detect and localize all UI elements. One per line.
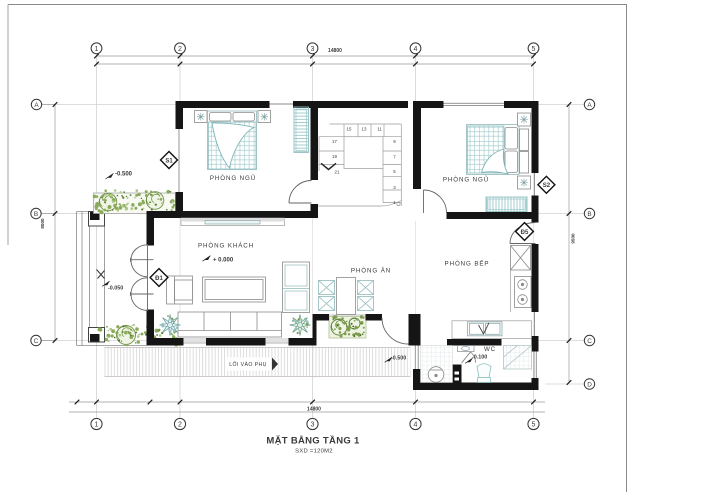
svg-text:PHÒNG NGỦ: PHÒNG NGỦ: [210, 175, 256, 182]
svg-text:C: C: [34, 338, 39, 345]
svg-text:SXD =120M2: SXD =120M2: [295, 449, 333, 455]
svg-text:D: D: [587, 382, 592, 389]
svg-text:PHÒNG BẾP: PHÒNG BẾP: [445, 261, 490, 268]
svg-text:3: 3: [311, 46, 315, 53]
svg-text:-0.100: -0.100: [472, 355, 487, 361]
svg-text:13: 13: [362, 126, 367, 131]
svg-text:1: 1: [95, 46, 99, 53]
svg-text:+ 0.000: + 0.000: [213, 258, 234, 264]
svg-text:PHÒNG NGỦ: PHÒNG NGỦ: [443, 177, 489, 184]
svg-text:PHÒNG ĂN: PHÒNG ĂN: [351, 268, 391, 275]
svg-text:4: 4: [414, 46, 418, 53]
svg-text:17: 17: [332, 139, 337, 144]
svg-text:3: 3: [311, 422, 315, 429]
svg-text:8000: 8000: [40, 218, 45, 229]
svg-text:-0.500: -0.500: [391, 356, 406, 362]
svg-text:11: 11: [377, 126, 382, 131]
svg-text:S1: S1: [165, 158, 173, 164]
svg-text:A: A: [587, 102, 592, 109]
svg-text:Đ1: Đ1: [155, 276, 163, 282]
svg-text:B: B: [587, 211, 591, 218]
svg-text:2: 2: [178, 422, 182, 429]
svg-text:14800: 14800: [328, 48, 342, 54]
svg-text:21: 21: [335, 170, 340, 175]
svg-text:-0.500: -0.500: [115, 172, 133, 178]
svg-text:WC: WC: [484, 346, 496, 353]
svg-text:Đ5: Đ5: [521, 230, 529, 236]
svg-text:1: 1: [95, 422, 99, 429]
svg-text:MẶT BẰNG TẦNG 1: MẶT BẰNG TẦNG 1: [266, 436, 360, 447]
svg-text:5: 5: [532, 422, 536, 429]
svg-text:-0.050: -0.050: [108, 286, 123, 292]
svg-text:A: A: [34, 102, 39, 109]
svg-text:B: B: [34, 211, 38, 218]
svg-text:C: C: [587, 338, 592, 345]
svg-text:S2: S2: [543, 183, 551, 189]
svg-text:2: 2: [178, 46, 182, 53]
svg-text:9500: 9500: [571, 233, 576, 244]
svg-text:PHÒNG KHÁCH: PHÒNG KHÁCH: [198, 243, 254, 250]
svg-text:19: 19: [332, 154, 337, 159]
svg-text:4: 4: [414, 422, 418, 429]
svg-text:15: 15: [347, 126, 352, 131]
svg-text:LỐI VÀO PHỤ: LỐI VÀO PHỤ: [229, 361, 267, 368]
svg-text:14800: 14800: [307, 407, 321, 413]
svg-text:5: 5: [532, 46, 536, 53]
